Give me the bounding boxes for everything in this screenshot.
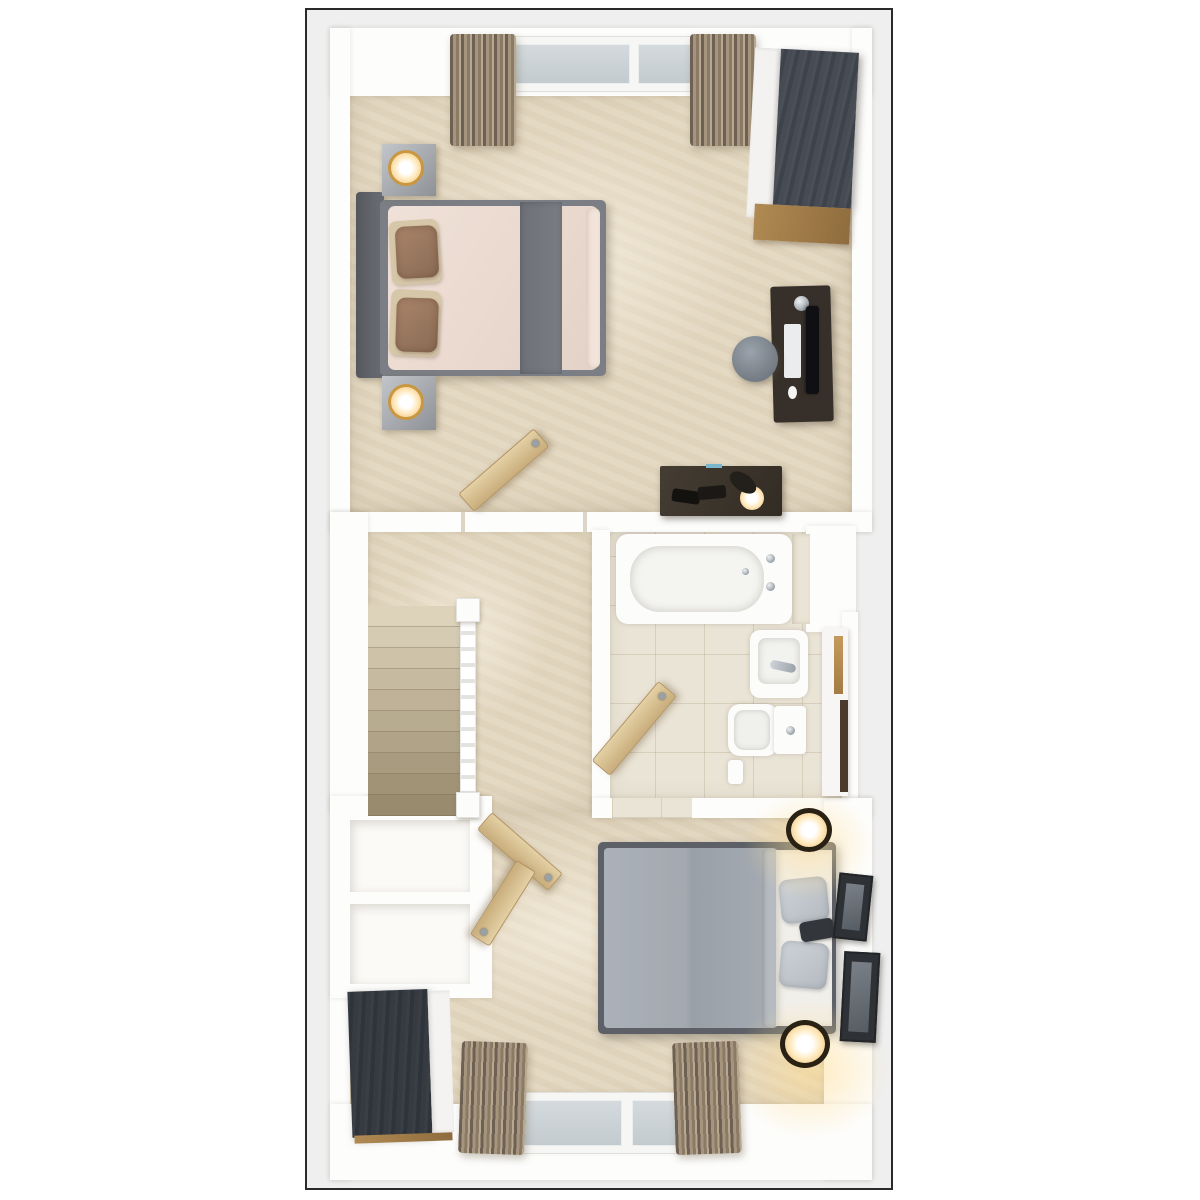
books	[697, 485, 726, 500]
stool	[732, 336, 778, 382]
door-handle	[543, 873, 553, 883]
storage-dark-accent	[840, 700, 848, 792]
drum-lamp	[780, 1020, 830, 1068]
bed-1-runner	[520, 202, 562, 374]
wall-art-canvas	[848, 962, 872, 1033]
stair-step	[368, 774, 462, 795]
door-frame-mark	[583, 512, 587, 532]
table-lamp	[388, 384, 424, 420]
wall-art	[840, 951, 881, 1043]
dresser-accent	[706, 464, 722, 468]
floorplan-scene	[0, 0, 1200, 1200]
bathtub-basin	[630, 546, 764, 612]
bath-tap	[766, 582, 775, 591]
bed-2-pillow	[778, 876, 830, 925]
wall-landing-west	[330, 512, 368, 812]
stair-step	[368, 648, 462, 669]
bed-1-pillow	[395, 297, 439, 352]
bed-2-duvet	[604, 848, 774, 1028]
banister-rail	[460, 602, 476, 816]
wall-bedroom-1-south	[330, 512, 872, 532]
wardrobe-oak-base	[753, 204, 851, 245]
window-pane	[508, 44, 630, 84]
stair-step	[368, 669, 462, 690]
bed-1-duvet-edge	[586, 208, 600, 368]
storage-cupboard-1	[350, 820, 470, 892]
door-handle	[479, 927, 489, 937]
bed-1-pillow	[395, 225, 440, 279]
stair-step	[368, 627, 462, 648]
table-lamp	[388, 150, 424, 186]
curtain	[690, 34, 756, 146]
stair-step	[368, 606, 462, 627]
curtain	[450, 34, 516, 146]
toilet-seat	[734, 710, 770, 750]
bath-tile-ledge	[792, 534, 810, 624]
wardrobe-top	[773, 49, 859, 209]
stair-step	[368, 690, 462, 711]
monitor	[806, 306, 819, 394]
mouse	[788, 386, 797, 399]
window-pane	[516, 1100, 622, 1146]
curtain	[672, 1041, 742, 1155]
wardrobe-top	[347, 989, 432, 1138]
storage-cupboard-2	[350, 904, 470, 984]
stair-step	[368, 711, 462, 732]
door-frame-mark	[461, 512, 465, 532]
newel-post-bottom	[456, 792, 480, 818]
bathroom-door-opening	[612, 798, 692, 818]
wall-art	[833, 872, 874, 941]
bath-tap	[766, 554, 775, 563]
storage-oak-accent	[834, 636, 843, 694]
bath-drain	[742, 568, 749, 575]
stair-step	[368, 732, 462, 753]
newel-post-top	[456, 598, 480, 622]
curtain	[458, 1041, 528, 1155]
bed-2-pillow	[778, 940, 830, 990]
door-handle	[531, 438, 541, 448]
toilet-brush	[728, 760, 743, 784]
keyboard	[784, 324, 801, 378]
flush-button	[786, 726, 795, 735]
bedroom-2-wardrobe	[347, 988, 454, 1143]
wall-art-canvas	[842, 883, 865, 931]
door-handle	[657, 691, 667, 701]
drum-lamp	[786, 808, 832, 852]
bedroom-1-wardrobe	[745, 47, 859, 244]
stair-step	[368, 753, 462, 774]
staircase-steps	[368, 606, 462, 806]
stair-step	[368, 795, 462, 816]
